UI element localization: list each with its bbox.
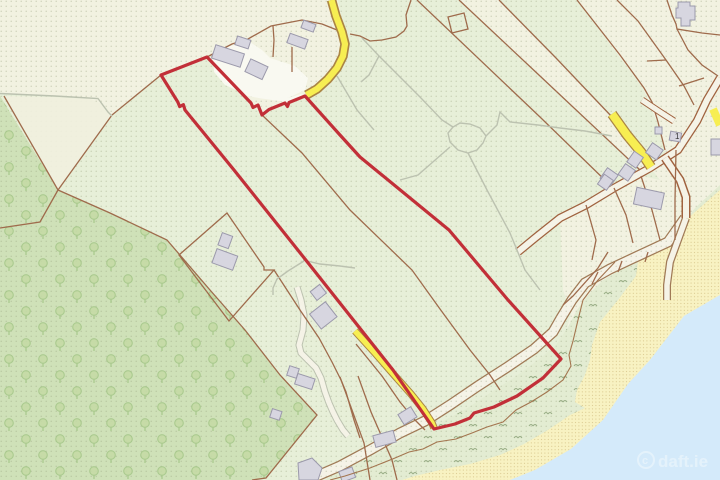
svg-text:1: 1	[675, 132, 680, 141]
svg-text:c: c	[642, 455, 648, 467]
svg-text:daft.ie: daft.ie	[658, 452, 708, 471]
